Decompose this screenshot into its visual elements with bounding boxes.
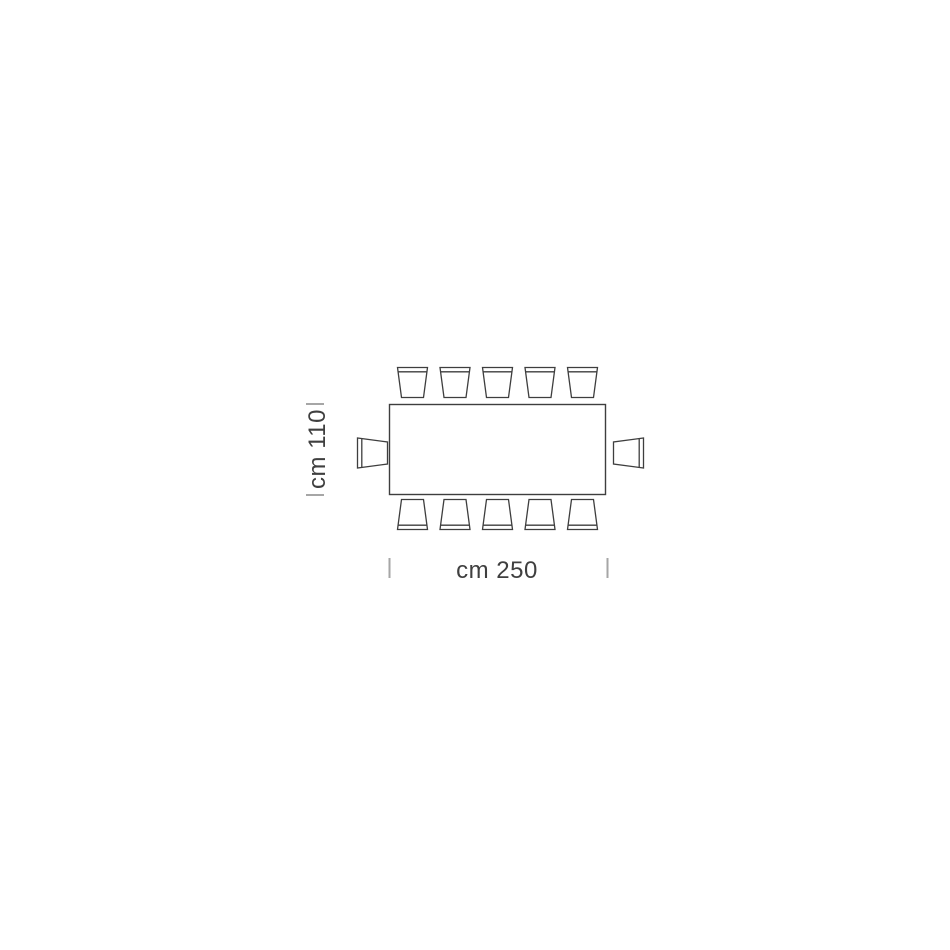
- table-top: [390, 405, 606, 495]
- chair-top-4-icon: [525, 368, 555, 398]
- depth-dimension-label: cm 110: [303, 389, 333, 509]
- chair-bottom-5-icon: [568, 500, 598, 530]
- chair-bottom-3-icon: [483, 500, 513, 530]
- chair-bottom-1-icon: [398, 500, 428, 530]
- floorplan-svg: [0, 0, 950, 950]
- chair-top-1-icon: [398, 368, 428, 398]
- chair-top-3-icon: [483, 368, 513, 398]
- chair-bottom-4-icon: [525, 500, 555, 530]
- chair-top-5-icon: [568, 368, 598, 398]
- floorplan-diagram: cm 250 cm 110: [0, 0, 950, 950]
- chair-right-icon: [614, 438, 644, 468]
- width-dimension-label: cm 250: [437, 556, 557, 586]
- chair-top-2-icon: [440, 368, 470, 398]
- chair-left-icon: [358, 438, 388, 468]
- chair-bottom-2-icon: [440, 500, 470, 530]
